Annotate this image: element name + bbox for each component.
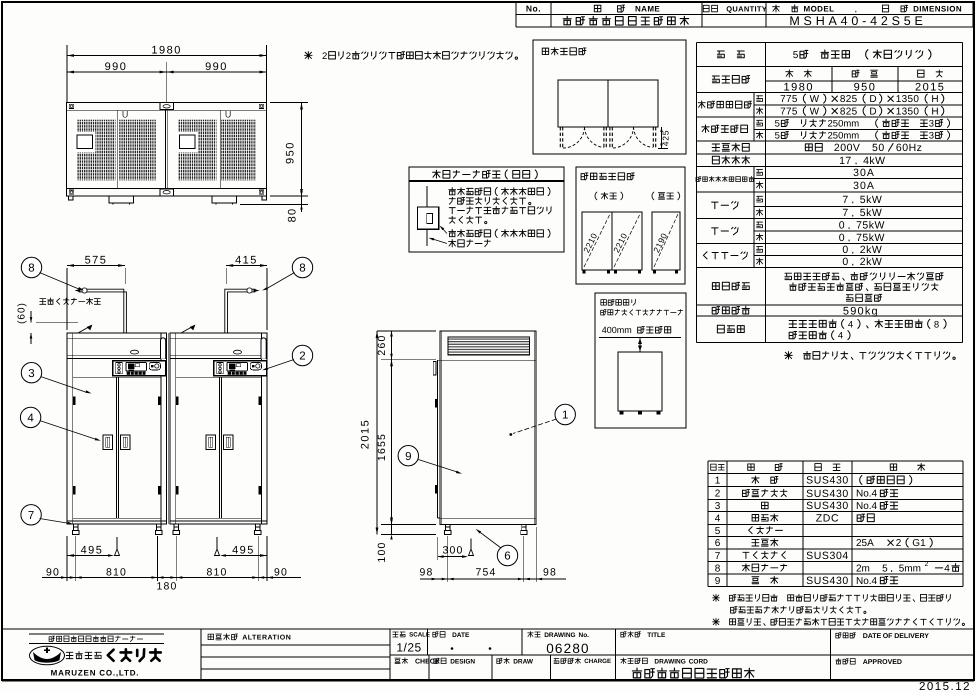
- svg-text:0: 0: [842, 256, 848, 268]
- svg-text:2015: 2015: [915, 82, 945, 94]
- svg-text:30A: 30A: [853, 167, 875, 179]
- svg-text:990: 990: [205, 61, 228, 73]
- svg-text:80: 80: [287, 208, 299, 223]
- svg-text:H: H: [931, 107, 939, 118]
- svg-text:90: 90: [46, 567, 60, 579]
- svg-text:98: 98: [543, 567, 557, 579]
- svg-text:6: 6: [504, 551, 510, 563]
- svg-text:990: 990: [105, 61, 128, 73]
- svg-text:825: 825: [840, 107, 858, 118]
- svg-text:ALTERATION: ALTERATION: [242, 635, 291, 642]
- svg-text:8: 8: [28, 263, 34, 275]
- svg-text:No.4: No.4: [856, 489, 878, 500]
- svg-text:G1: G1: [912, 538, 926, 549]
- svg-text:DRAWING: DRAWING: [544, 632, 575, 639]
- svg-text:1655: 1655: [376, 433, 388, 461]
- svg-text:5mm: 5mm: [899, 563, 921, 574]
- svg-text:1350: 1350: [896, 107, 920, 118]
- svg-text:50: 50: [872, 142, 885, 154]
- svg-text:SUS430: SUS430: [806, 575, 849, 587]
- svg-text:590kg: 590kg: [843, 305, 879, 317]
- svg-text:9: 9: [405, 451, 411, 463]
- svg-text:7: 7: [842, 207, 848, 219]
- svg-text:4: 4: [838, 331, 843, 342]
- svg-text:6: 6: [715, 538, 721, 549]
- svg-text:NAME: NAME: [635, 5, 660, 14]
- svg-text:0: 0: [839, 220, 845, 232]
- svg-text:575: 575: [85, 255, 108, 267]
- svg-text:2: 2: [925, 561, 929, 568]
- svg-text:H: H: [931, 94, 939, 105]
- svg-text:75kW: 75kW: [856, 232, 885, 244]
- svg-text:1980: 1980: [151, 45, 181, 57]
- svg-text:1980: 1980: [784, 82, 814, 94]
- svg-text:CHARGE: CHARGE: [584, 658, 611, 665]
- svg-text:2m: 2m: [856, 563, 870, 574]
- svg-text:SUS430: SUS430: [806, 488, 849, 500]
- svg-text:2kW: 2kW: [860, 244, 883, 256]
- svg-text:4: 4: [715, 514, 721, 525]
- svg-text:5kW: 5kW: [860, 207, 883, 219]
- svg-text:60Hz: 60Hz: [896, 142, 923, 154]
- svg-text:1/25: 1/25: [396, 641, 421, 655]
- svg-text:TITLE: TITLE: [647, 632, 666, 639]
- svg-text:250mm: 250mm: [828, 119, 860, 130]
- svg-text:SUS430: SUS430: [806, 475, 849, 487]
- svg-text:775: 775: [780, 107, 798, 118]
- svg-text:1: 1: [715, 476, 721, 487]
- svg-text:2: 2: [715, 489, 721, 500]
- svg-text:98: 98: [419, 567, 433, 579]
- svg-text:495: 495: [81, 545, 104, 557]
- svg-text:5: 5: [775, 131, 780, 142]
- svg-text:DRAW: DRAW: [513, 658, 534, 665]
- svg-text:260: 260: [376, 334, 388, 355]
- svg-text:3: 3: [28, 368, 34, 380]
- svg-text:No.: No.: [526, 4, 541, 14]
- svg-text:825: 825: [840, 94, 858, 105]
- svg-text:1350: 1350: [896, 94, 920, 105]
- svg-text:W: W: [810, 107, 820, 118]
- svg-text:DATE: DATE: [863, 633, 882, 640]
- svg-text:754: 754: [475, 567, 496, 579]
- svg-text:7: 7: [842, 194, 848, 206]
- svg-text:ZDC: ZDC: [816, 513, 839, 525]
- svg-text:D: D: [869, 94, 877, 105]
- svg-text:3: 3: [929, 119, 934, 130]
- svg-text:90: 90: [274, 567, 288, 579]
- svg-text:06280: 06280: [546, 641, 590, 656]
- svg-text:2015: 2015: [360, 419, 372, 449]
- svg-text:300: 300: [442, 545, 463, 557]
- svg-text:495: 495: [232, 545, 255, 557]
- svg-text:No.4: No.4: [856, 576, 878, 587]
- svg-text:100: 100: [376, 541, 388, 562]
- svg-text:No.4: No.4: [856, 501, 878, 512]
- svg-text:CORD: CORD: [689, 658, 708, 665]
- svg-text:7: 7: [715, 551, 721, 562]
- svg-text:950: 950: [285, 141, 297, 164]
- svg-text:APPROVED: APPROVED: [863, 659, 902, 666]
- svg-text:1: 1: [562, 410, 568, 422]
- svg-text:DIMENSION: DIMENSION: [913, 5, 962, 14]
- svg-text:2: 2: [299, 351, 305, 363]
- svg-text:75kW: 75kW: [856, 220, 885, 232]
- svg-text:9: 9: [715, 576, 721, 587]
- svg-text:8: 8: [299, 263, 305, 275]
- svg-text:3: 3: [929, 131, 934, 142]
- svg-text:810: 810: [106, 567, 127, 579]
- svg-text:2kW: 2kW: [860, 256, 883, 268]
- svg-text:250mm: 250mm: [828, 131, 860, 142]
- svg-text:0: 0: [842, 244, 848, 256]
- svg-text:QUANTITY: QUANTITY: [726, 4, 767, 13]
- svg-text:SUS430: SUS430: [806, 500, 849, 512]
- svg-text:4: 4: [27, 413, 34, 425]
- svg-text:200V: 200V: [834, 142, 861, 154]
- svg-text:2: 2: [322, 51, 327, 62]
- svg-text:950: 950: [854, 82, 877, 94]
- svg-text:5: 5: [715, 526, 721, 537]
- svg-text:2: 2: [896, 538, 902, 549]
- svg-text:425: 425: [661, 130, 671, 147]
- svg-text:OF: OF: [883, 633, 893, 640]
- svg-text:SCALE: SCALE: [409, 632, 430, 639]
- svg-text:MODEL: MODEL: [804, 5, 835, 14]
- svg-text:400mm: 400mm: [602, 325, 632, 335]
- svg-text:5: 5: [793, 50, 799, 61]
- svg-text:3: 3: [715, 501, 721, 512]
- svg-text:DRAWING: DRAWING: [654, 658, 685, 665]
- svg-text:415: 415: [235, 255, 258, 267]
- svg-text:DELIVERY: DELIVERY: [894, 633, 929, 640]
- svg-text:810: 810: [206, 567, 227, 579]
- svg-text:17: 17: [839, 155, 852, 167]
- svg-text:0: 0: [839, 232, 845, 244]
- svg-text:8: 8: [934, 319, 939, 330]
- svg-text:No.: No.: [579, 632, 590, 639]
- svg-text:MARUZEN CO.,LTD.: MARUZEN CO.,LTD.: [51, 669, 140, 678]
- svg-text:30A: 30A: [853, 180, 875, 192]
- svg-text:7: 7: [28, 510, 34, 522]
- svg-text:DATE: DATE: [452, 632, 470, 639]
- svg-text:5: 5: [882, 563, 888, 574]
- svg-text:CHECK: CHECK: [415, 659, 440, 666]
- svg-text:180: 180: [156, 581, 177, 593]
- svg-text:MSHA40-42S5E: MSHA40-42S5E: [789, 14, 926, 28]
- svg-text:D: D: [869, 107, 877, 118]
- svg-text:2: 2: [346, 51, 351, 62]
- svg-text:5kW: 5kW: [860, 194, 883, 206]
- svg-text:(60): (60): [17, 302, 28, 324]
- svg-text:775: 775: [780, 94, 798, 105]
- svg-text:SUS304: SUS304: [806, 550, 849, 562]
- svg-text:4kW: 4kW: [863, 155, 886, 167]
- svg-text:25A: 25A: [856, 538, 874, 549]
- svg-text:8: 8: [715, 563, 721, 574]
- svg-text:DESIGN: DESIGN: [450, 658, 475, 665]
- svg-text:4: 4: [848, 319, 853, 330]
- svg-text:4: 4: [944, 563, 950, 574]
- svg-text:2015.12: 2015.12: [919, 681, 971, 692]
- svg-text:W: W: [810, 94, 820, 105]
- svg-text:5: 5: [775, 119, 780, 130]
